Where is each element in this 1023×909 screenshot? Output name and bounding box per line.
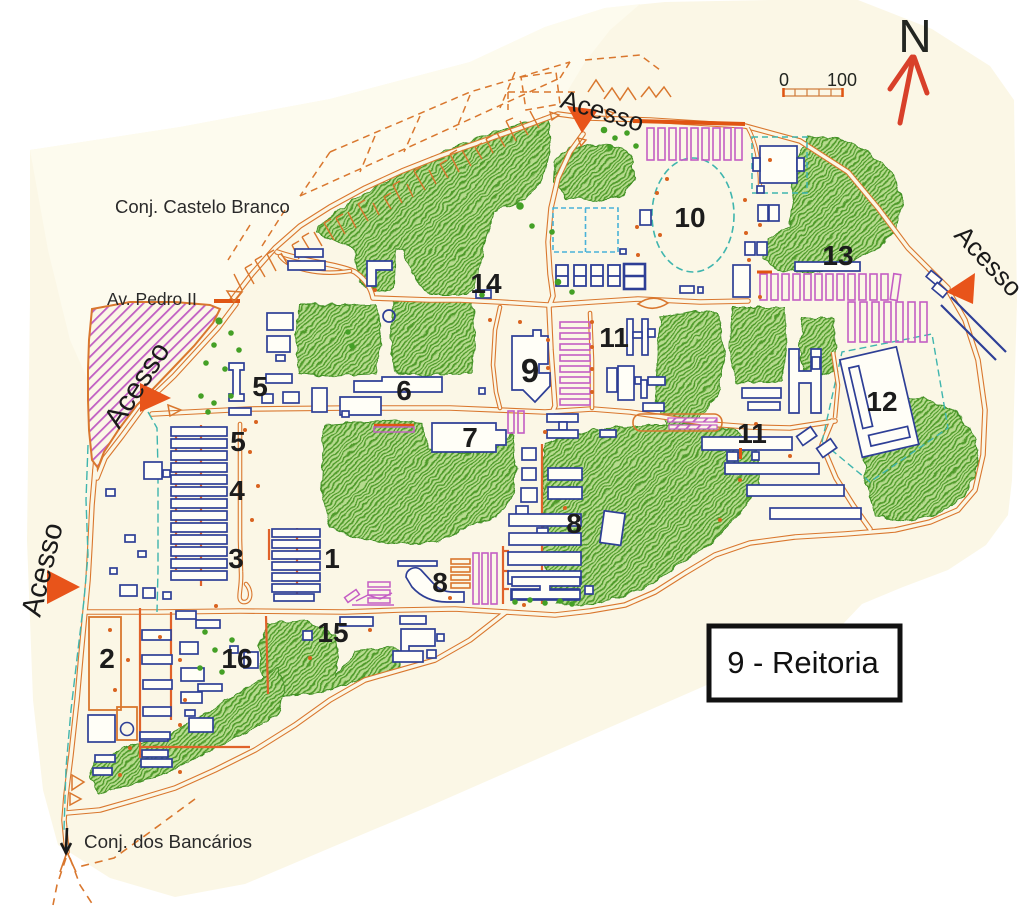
svg-text:3: 3 xyxy=(228,543,244,574)
svg-text:7: 7 xyxy=(462,422,478,453)
svg-text:11: 11 xyxy=(599,322,629,353)
svg-text:13: 13 xyxy=(822,240,853,271)
svg-text:Conj. dos Bancários: Conj. dos Bancários xyxy=(84,831,252,852)
svg-text:1: 1 xyxy=(324,543,340,574)
svg-text:9 - Reitoria: 9 - Reitoria xyxy=(727,645,879,680)
svg-text:8: 8 xyxy=(566,508,582,539)
svg-text:Av. Pedro II: Av. Pedro II xyxy=(107,289,197,309)
svg-text:2: 2 xyxy=(99,643,115,674)
svg-text:15: 15 xyxy=(317,617,348,648)
svg-text:4: 4 xyxy=(229,475,245,506)
svg-text:11: 11 xyxy=(737,418,767,449)
svg-text:10: 10 xyxy=(674,202,705,233)
svg-text:0: 0 xyxy=(779,70,789,90)
svg-text:100: 100 xyxy=(827,70,857,90)
svg-text:N: N xyxy=(898,10,931,62)
svg-text:9: 9 xyxy=(521,352,539,389)
svg-text:5: 5 xyxy=(230,426,246,457)
svg-text:14: 14 xyxy=(470,268,502,299)
svg-text:8: 8 xyxy=(432,567,448,598)
svg-text:6: 6 xyxy=(396,375,412,406)
svg-text:16: 16 xyxy=(221,643,252,674)
svg-text:5: 5 xyxy=(252,371,268,402)
svg-text:Conj. Castelo Branco: Conj. Castelo Branco xyxy=(115,196,290,217)
svg-text:12: 12 xyxy=(866,386,897,417)
